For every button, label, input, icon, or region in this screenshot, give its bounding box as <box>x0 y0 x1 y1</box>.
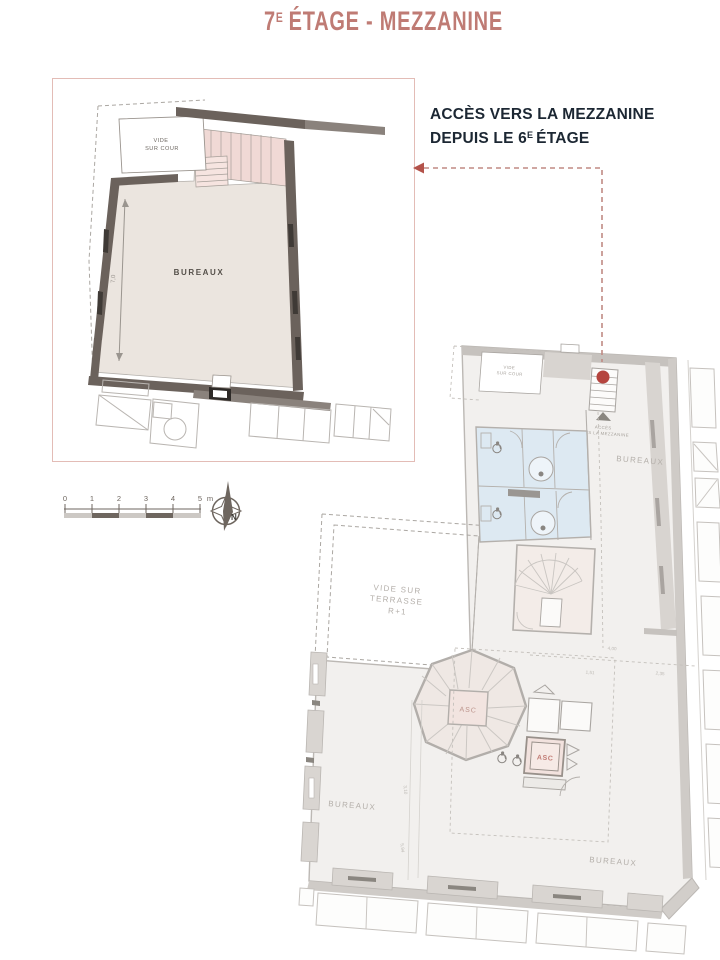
scale-tick-label: 4 <box>171 494 175 503</box>
wc-fixture <box>529 457 553 481</box>
dim-label: 4,00 <box>607 646 617 652</box>
main-plan-canvas: VIDE SUR TERRASSE R+1 VIDE SUR COUR <box>0 0 720 960</box>
scale-unit-label: m <box>207 494 213 503</box>
dim-label: 2,35 <box>655 671 665 677</box>
wc-fixture-dot <box>541 526 546 531</box>
floor-plan-page: 7EÉTAGE - MEZZANINE <box>0 0 720 960</box>
sixth-floor-plan: VIDE SUR TERRASSE R+1 VIDE SUR COUR <box>299 344 720 954</box>
elevator-label: ASC <box>537 754 554 762</box>
entry-niche <box>543 352 592 380</box>
scale-tick-label: 3 <box>144 494 148 503</box>
wc-fixture <box>531 511 555 535</box>
dim-label: 1,51 <box>585 670 595 676</box>
dim-label: 5,94 <box>400 843 406 853</box>
access-arrow <box>413 163 602 363</box>
dim-label: 3,10 <box>403 785 409 795</box>
roof-hatch <box>561 344 579 353</box>
scale-tick-label: 0 <box>63 494 67 503</box>
scale-bar: 0 1 2 3 4 5 m <box>63 494 213 518</box>
compass-north-label: N <box>231 513 237 522</box>
compass-north-icon: N <box>211 481 241 531</box>
right-balconies <box>688 360 720 880</box>
arrow-head <box>413 163 424 174</box>
access-point-marker <box>597 371 610 384</box>
scale-tick-label: 2 <box>117 494 121 503</box>
scale-tick-label: 1 <box>90 494 94 503</box>
terrace-label: VIDE SUR TERRASSE R+1 <box>369 583 428 618</box>
scale-tick-label: 5 <box>198 494 202 503</box>
stair-elevator-label: ASC <box>459 706 477 714</box>
wc-fixture-dot <box>539 472 544 477</box>
